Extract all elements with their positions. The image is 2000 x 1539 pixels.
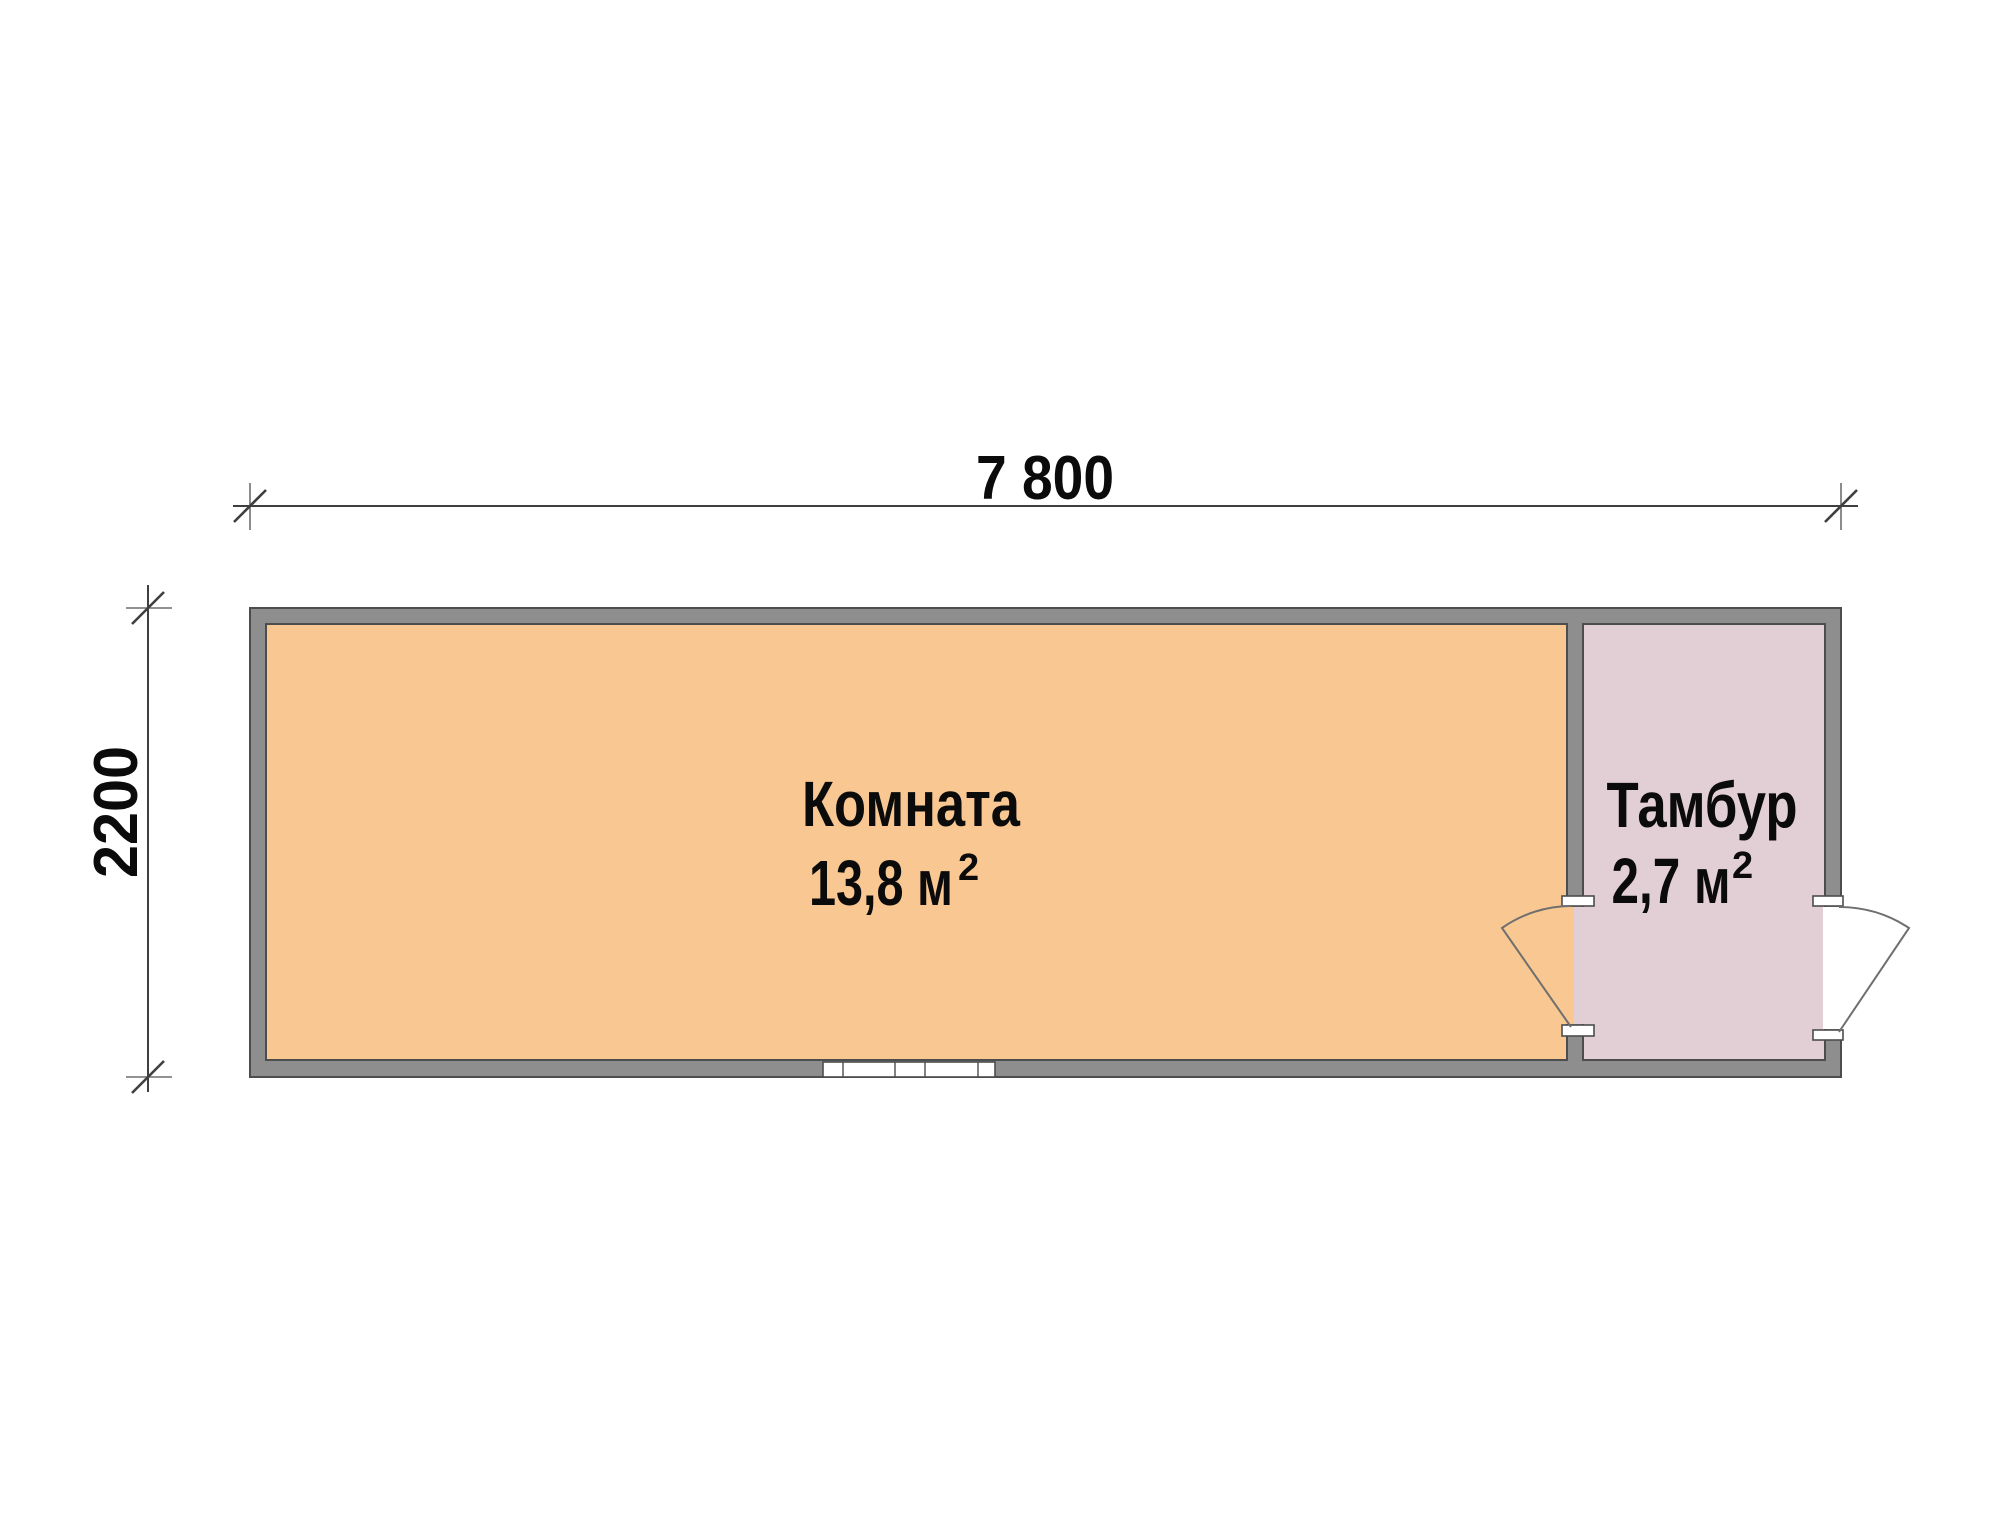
door-jamb <box>1562 1025 1594 1036</box>
dimension-height-label: 2200 <box>82 746 151 878</box>
floor-plan-page: 7 800 2200 <box>0 0 2000 1539</box>
dimension-top: 7 800 <box>233 444 1858 530</box>
exterior-opening-gap <box>1823 907 1843 1029</box>
room-komnata-area: 13,8 м <box>809 847 953 919</box>
floor-plan-drawing: 7 800 2200 <box>0 0 2000 1539</box>
room-tambur-floor <box>1583 624 1825 1060</box>
interior-opening-floor-left <box>1565 907 1575 1024</box>
room-tambur-area: 2,7 м <box>1612 845 1731 917</box>
door-jamb <box>1813 896 1843 906</box>
room-tambur-area-superscript: 2 <box>1732 845 1753 887</box>
door-jamb <box>1562 896 1594 906</box>
interior-opening-floor-right <box>1574 907 1585 1024</box>
room-tambur-name: Тамбур <box>1607 769 1798 841</box>
exterior-door-swing <box>1839 907 1909 1032</box>
exterior-door-opening <box>1813 896 1909 1040</box>
window-symbol <box>823 1062 995 1077</box>
dimension-left: 2200 <box>82 585 172 1093</box>
dimension-width-label: 7 800 <box>976 444 1114 513</box>
window-frame <box>823 1062 995 1077</box>
room-komnata-floor <box>266 624 1567 1060</box>
room-komnata-area-superscript: 2 <box>958 847 979 889</box>
room-komnata-name: Комната <box>802 768 1020 840</box>
